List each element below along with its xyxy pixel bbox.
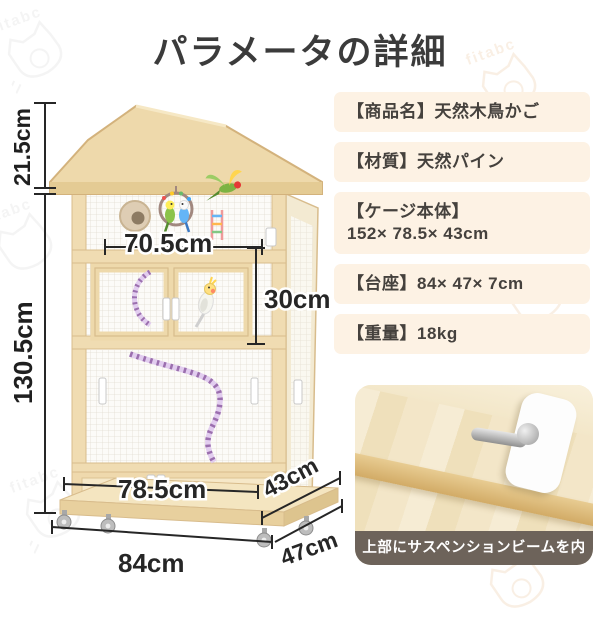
- caster-wheel: [257, 528, 271, 547]
- page-title: パラメータの詳細: [0, 24, 600, 75]
- spec-weight: 【重量】18kg: [334, 314, 590, 354]
- spec-product-name: 【商品名】天然木鳥かご: [334, 92, 590, 132]
- product-detail-image: fitabc fitabc fitabc fitabc fitabc: [0, 0, 600, 600]
- side-door-handle: [294, 380, 302, 404]
- detail-photo-caption: 上部にサスペンションビームを内蔵: [355, 531, 593, 565]
- spec-list: 【商品名】天然木鳥かご 【材質】天然パイン 【ケージ本体】 152× 78.5×…: [334, 92, 590, 364]
- dim-inner-width: 70.5cm: [124, 228, 212, 258]
- spec-material: 【材質】天然パイン: [334, 142, 590, 182]
- dim-base-width: 84cm: [118, 548, 185, 578]
- spec-base-size: 【台座】84× 47× 7cm: [334, 264, 590, 304]
- door-latch: [172, 298, 179, 320]
- spec-cage-size: 【ケージ本体】 152× 78.5× 43cm: [334, 192, 590, 254]
- dim-roof-height: 21.5cm: [9, 108, 35, 186]
- detail-photo-card: 上部にサスペンションビームを内蔵: [355, 385, 593, 565]
- peg-hub: [517, 423, 539, 445]
- birdcage-diagram: 21.5cm 130.5cm 70.5cm 30cm 78.5cm 43cm 8…: [0, 82, 360, 602]
- hinge: [266, 228, 276, 246]
- door-latch: [163, 298, 170, 320]
- barn-roof: [50, 106, 322, 194]
- dim-drawer-width: 78.5cm: [118, 474, 206, 504]
- dim-body-height: 130.5cm: [8, 301, 38, 404]
- lower-door-handle: [251, 378, 258, 404]
- lower-door-handle: [99, 378, 106, 404]
- rail: [72, 463, 286, 472]
- nest: [120, 201, 150, 231]
- dim-door-height: 30cm: [264, 284, 331, 314]
